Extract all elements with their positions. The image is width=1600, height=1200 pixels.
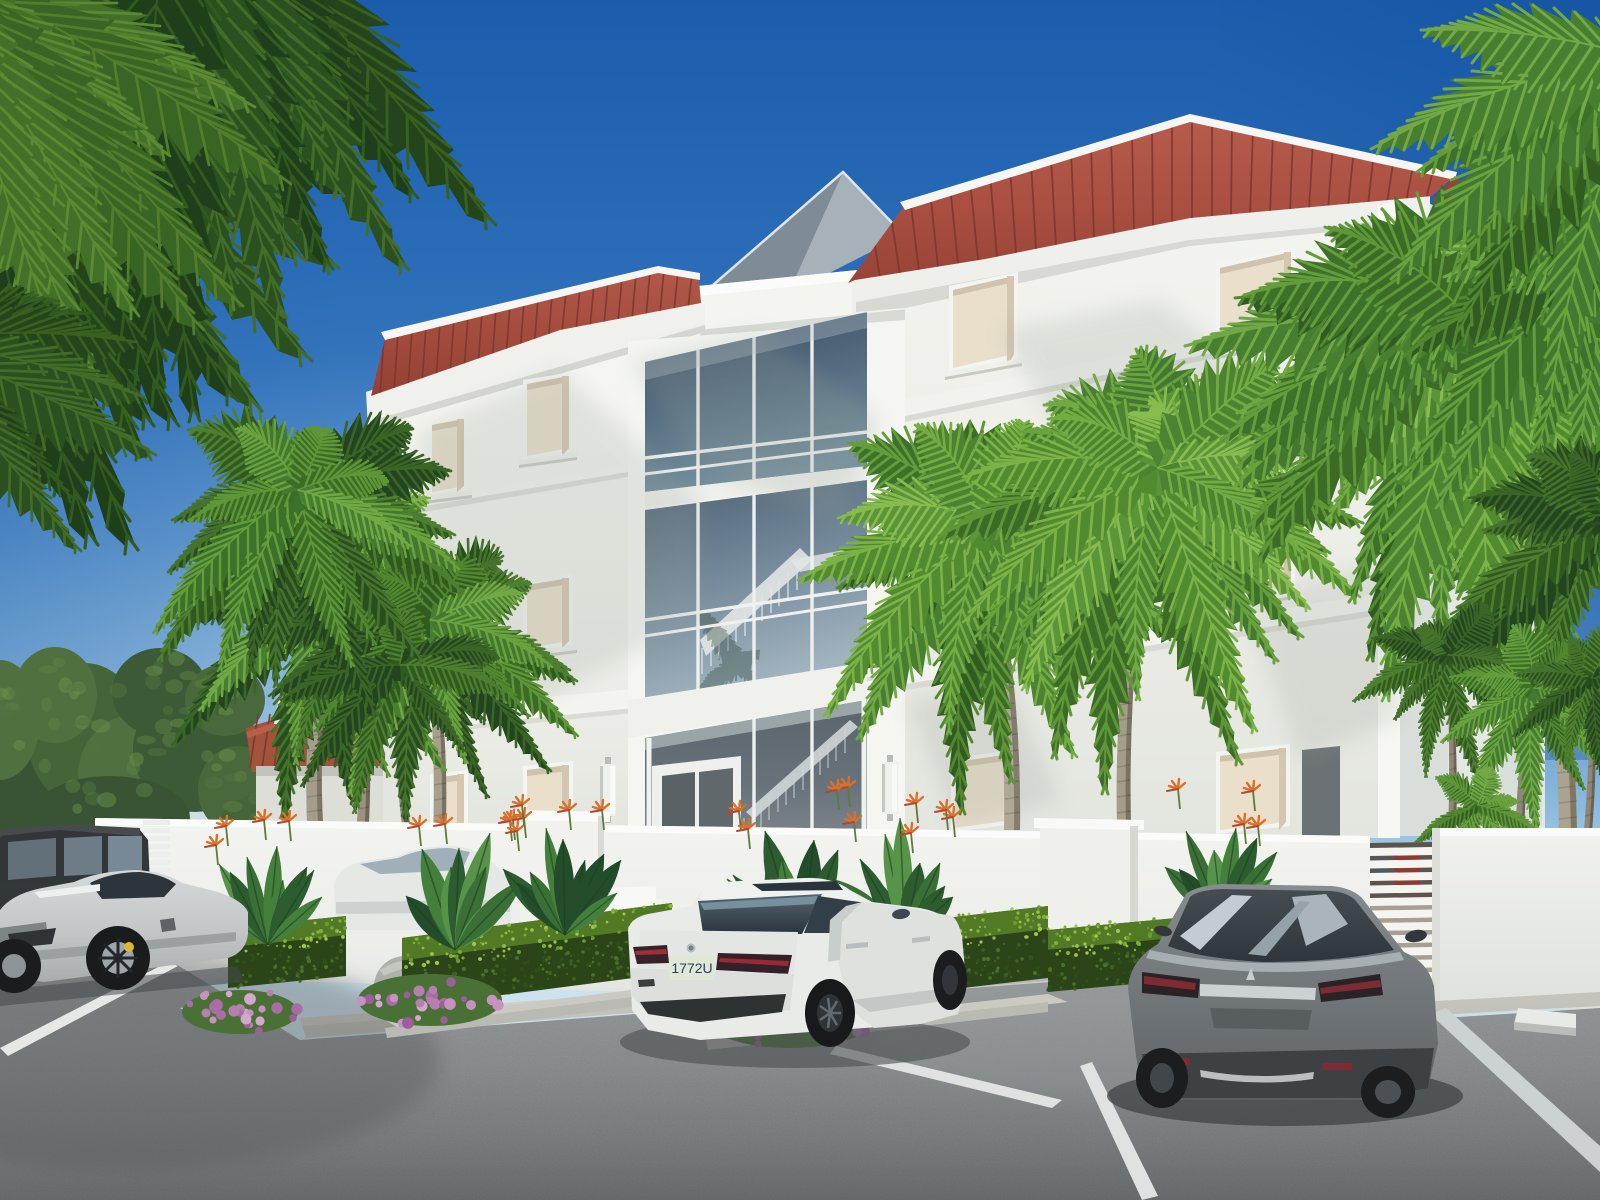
svg-text:1772U: 1772U xyxy=(671,960,712,976)
